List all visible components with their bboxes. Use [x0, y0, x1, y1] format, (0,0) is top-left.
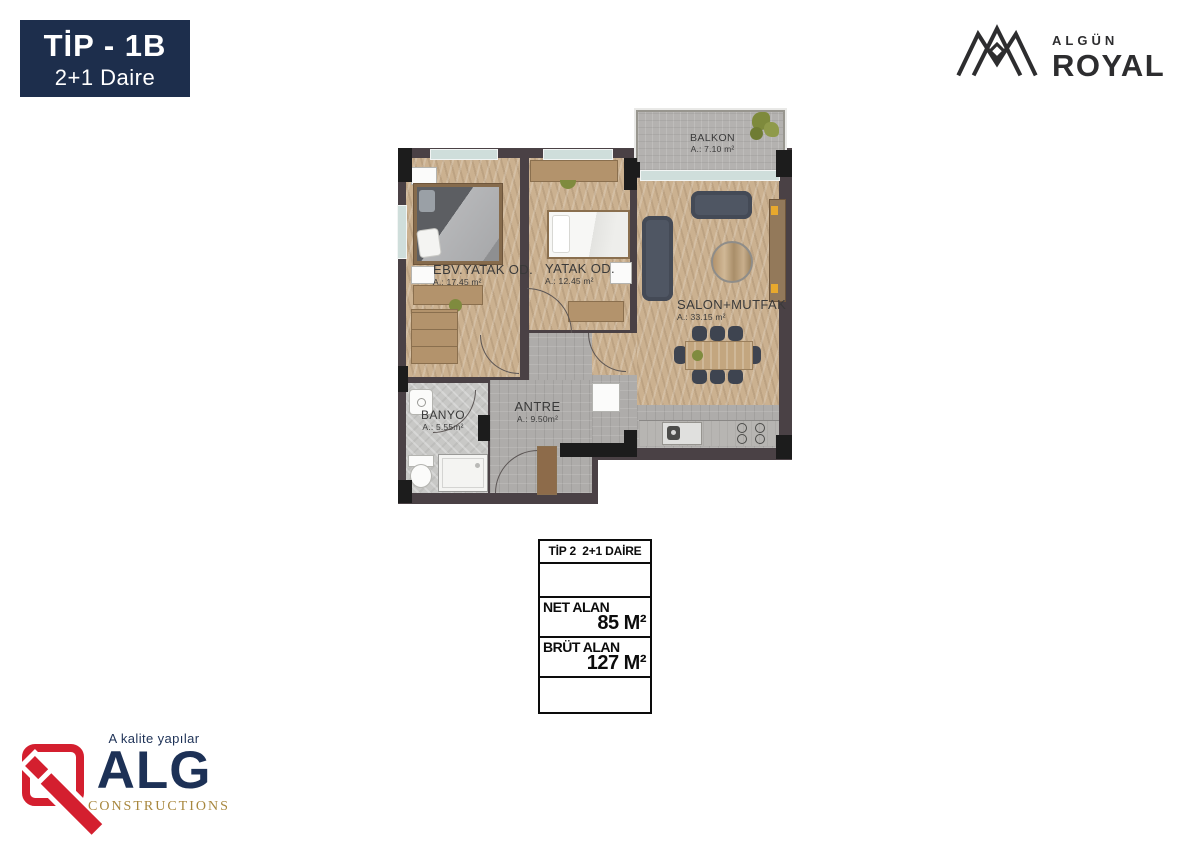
spec-table-empty-row: [540, 562, 650, 596]
column: [398, 480, 412, 503]
flyer-page: TİP - 1B 2+1 Daire ALGÜN ROYAL: [0, 0, 1191, 842]
window: [543, 149, 613, 160]
stove: [735, 421, 769, 444]
window: [430, 149, 498, 160]
room-floor-antre: [529, 333, 592, 383]
kitchen-sink: [662, 422, 702, 445]
column: [628, 162, 640, 177]
desk: [413, 285, 483, 305]
column: [398, 148, 412, 182]
chair: [728, 326, 743, 341]
wardrobe: [411, 309, 458, 364]
sofa: [642, 216, 673, 301]
wardrobe: [530, 160, 618, 182]
double-bed: [413, 183, 503, 265]
net-alan-value: 85 M²: [597, 612, 646, 635]
pillow: [419, 190, 435, 212]
plant-icon: [692, 350, 703, 361]
room-label-yatak: YATAK OD. A.: 12.45 m²: [545, 261, 640, 286]
alg-constructions-logo: A kalite yapılar ALG CONSTRUCTIONS: [88, 731, 220, 815]
floor-plan: BALKON A.: 7.10 m² EBV.YATAK OD. A.: 17.…: [0, 0, 1191, 842]
pillow: [552, 215, 570, 253]
chair: [692, 369, 707, 384]
balcony-door-window: [640, 170, 780, 181]
spec-table-row-net: NET ALAN 85 M²: [540, 596, 650, 636]
dresser: [568, 301, 624, 322]
column: [478, 415, 490, 441]
single-bed: [547, 210, 630, 259]
chair: [692, 326, 707, 341]
window: [397, 205, 407, 259]
spec-table: TİP 2 2+1 DAİRE NET ALAN 85 M² BRÜT ALAN…: [538, 539, 652, 714]
dining-table: [685, 341, 753, 370]
room-label-ebv-yatak: EBV.YATAK OD. A.: 17.45 m²: [433, 262, 543, 287]
column: [624, 430, 637, 455]
sofa: [691, 191, 752, 219]
chair: [728, 369, 743, 384]
pillow: [416, 228, 442, 259]
fridge: [592, 383, 620, 412]
room-label-banyo: BANYO A.: 5.55m²: [410, 408, 476, 432]
chair: [710, 326, 725, 341]
alg-wordmark: ALG: [88, 746, 220, 796]
nightstand: [411, 266, 435, 284]
alg-mark-icon: [22, 744, 84, 806]
door-leaf: [537, 446, 557, 495]
bathtub: [438, 454, 488, 492]
spec-table-header: TİP 2 2+1 DAİRE: [540, 541, 650, 562]
column: [398, 366, 408, 392]
column: [776, 435, 792, 459]
tv-unit: [769, 199, 786, 302]
spec-table-row-brut: BRÜT ALAN 127 M²: [540, 636, 650, 676]
round-rug: [711, 241, 753, 283]
alg-subtitle: CONSTRUCTIONS: [88, 799, 220, 815]
column: [776, 150, 792, 177]
chair: [710, 369, 725, 384]
room-label-balkon: BALKON A.: 7.10 m²: [660, 132, 765, 154]
room-label-antre: ANTRE A.: 9.50m²: [495, 399, 580, 424]
brut-alan-value: 127 M²: [587, 652, 646, 675]
room-label-salon: SALON+MUTFAK A.: 33.15 m²: [677, 297, 792, 322]
spec-table-empty-row: [540, 676, 650, 712]
